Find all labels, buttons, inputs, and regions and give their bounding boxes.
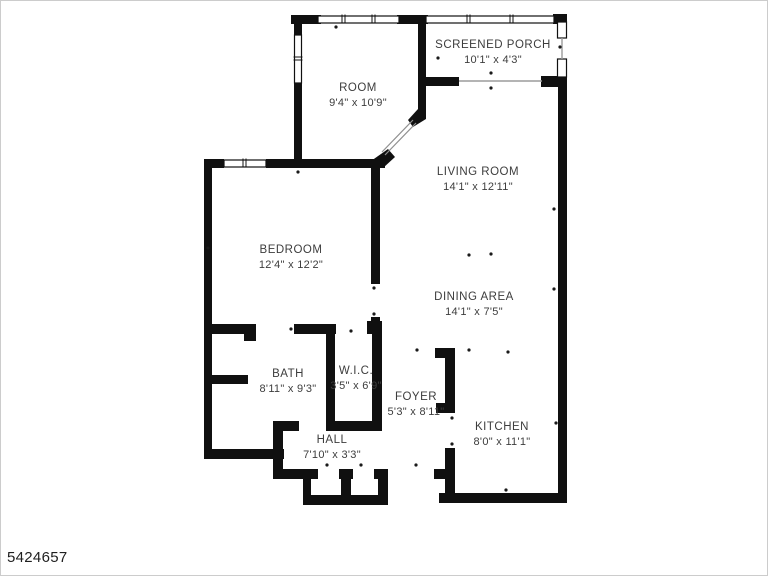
floor-plan xyxy=(1,1,768,576)
walls xyxy=(204,14,567,505)
dimension-ticks xyxy=(206,25,561,491)
listing-id: 5424657 xyxy=(7,549,68,566)
floor-plan-canvas: ROOM 9'4" x 10'9" SCREENED PORCH 10'1" x… xyxy=(0,0,768,576)
